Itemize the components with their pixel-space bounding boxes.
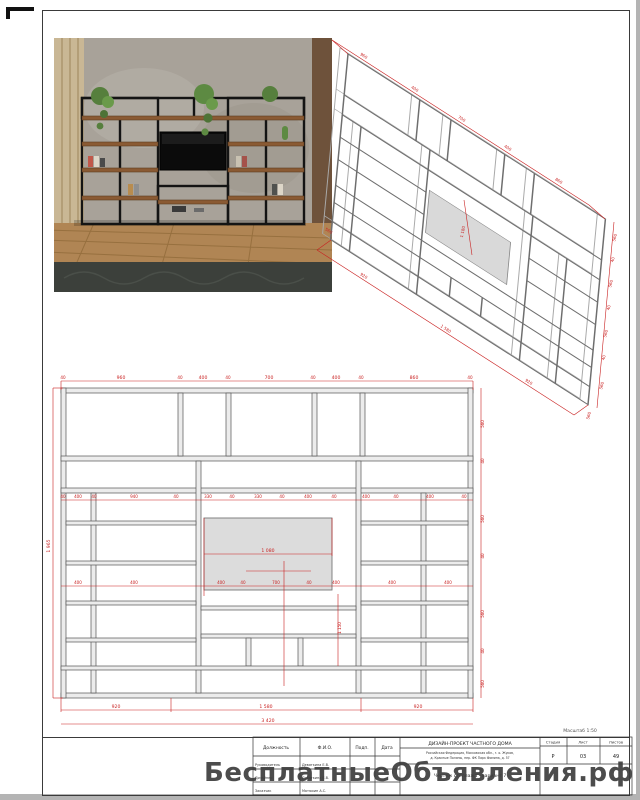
- sheet-label: Лист: [578, 740, 588, 745]
- dim-label: 40: [229, 494, 235, 499]
- col-header: Дата: [381, 745, 393, 751]
- watermark-text: БесплатныеОбъявления.рф: [204, 758, 634, 788]
- drawing-sheet: 960 400 700 400 860 560 40 560 40 560 40…: [0, 0, 636, 794]
- dim-label: 400: [362, 494, 370, 499]
- dim-label: 560: [480, 680, 485, 688]
- corner-mark-horizontal: [6, 7, 34, 11]
- dim-label: 40: [177, 375, 183, 380]
- dim-label: 40: [240, 580, 246, 585]
- dim-label: 330: [254, 494, 262, 499]
- dim-label: 40: [467, 375, 473, 380]
- dim-label: 560: [480, 420, 485, 428]
- dim-label: 330: [204, 494, 212, 499]
- dim-label: 400: [217, 580, 225, 585]
- dim-label: 1 080: [261, 548, 274, 554]
- dim-label: 400: [130, 580, 138, 585]
- dim-label: 40: [60, 494, 66, 499]
- dim-label: 40: [310, 375, 316, 380]
- dim-label: 400: [410, 85, 420, 94]
- dim-label: 560: [611, 233, 618, 242]
- dim-label: 40: [358, 375, 364, 380]
- interior-photo-render: [54, 38, 332, 292]
- dim-label: 40: [605, 304, 611, 311]
- drawing-sheet-page: { "sheet": { "watermark": "БесплатныеОбъ…: [0, 0, 640, 800]
- dim-label: 40: [609, 256, 615, 263]
- dim-label: 560: [480, 515, 485, 523]
- col-header: Должность: [263, 745, 289, 751]
- dim-label: 400: [199, 375, 208, 381]
- dim-label: 40: [225, 375, 231, 380]
- dim-label: 40: [480, 648, 485, 654]
- front-elevation-view: 40 960 40 400 40 700 40 400 40 860 40 40…: [36, 366, 496, 738]
- dim-label: 960: [359, 52, 369, 61]
- dim-label: 920: [414, 704, 423, 710]
- dim-label: 920: [112, 704, 121, 710]
- dim-label: 560: [607, 279, 614, 288]
- dim-label: 1 965: [46, 539, 52, 552]
- dim-label: 40: [600, 354, 606, 361]
- project-address-1: Российская Федерация, Московская обл., г…: [426, 751, 514, 755]
- dim-label: 400: [74, 494, 82, 499]
- dim-label: 920: [359, 272, 369, 281]
- dim-label: 700: [272, 580, 280, 585]
- dim-label: 560: [602, 329, 609, 338]
- dim-label: 400: [332, 580, 340, 585]
- dim-label: 560: [598, 381, 605, 390]
- photo-tv: [160, 132, 226, 170]
- dim-label: 40: [331, 494, 337, 499]
- dim-label: 40: [461, 494, 467, 499]
- dim-label: 400: [304, 494, 312, 499]
- elevation-frame-members: [61, 388, 473, 698]
- dim-label: 400: [426, 494, 434, 499]
- dim-label: 400: [74, 580, 82, 585]
- scale-note: Масштаб 1:50: [563, 728, 597, 734]
- dim-label: 920: [524, 378, 534, 387]
- dim-label: 700: [457, 115, 467, 124]
- dim-label: 40: [393, 494, 399, 499]
- dim-label: 1 150: [337, 622, 342, 634]
- dim-label: 40: [60, 375, 66, 380]
- dim-label: 1 580: [259, 704, 272, 710]
- project-title: ДИЗАЙН-ПРОЕКТ ЧАСТНОГО ДОМА: [428, 740, 512, 747]
- dim-label: 400: [332, 375, 341, 381]
- dim-label: 940: [130, 494, 138, 499]
- role-cell: Заказчик: [255, 789, 271, 793]
- dim-label: 40: [279, 494, 285, 499]
- dim-label: 860: [410, 375, 419, 381]
- sheets-label: Листов: [609, 740, 624, 745]
- dim-label: 960: [117, 375, 126, 381]
- col-header: Ф.И.О.: [318, 745, 333, 751]
- photo-floor: [54, 223, 332, 292]
- dim-label: 40: [306, 580, 312, 585]
- stage-label: Стадия: [546, 740, 561, 745]
- name-cell: Матюхин А.С.: [302, 789, 326, 793]
- dim-label: 560: [480, 610, 485, 618]
- isometric-view: 960 400 700 400 860 560 40 560 40 560 40…: [314, 10, 632, 422]
- dim-label: 40: [173, 494, 179, 499]
- elevation-dimensions: 40 960 40 400 40 700 40 400 40 860 40 40…: [46, 375, 485, 724]
- dim-label: 700: [265, 375, 274, 381]
- col-header: Подп.: [355, 745, 368, 751]
- dim-label: 560: [585, 411, 592, 420]
- corner-mark-vertical: [6, 7, 10, 19]
- dim-label: 40: [480, 553, 485, 559]
- dim-label: 40: [480, 458, 485, 464]
- dim-label: 400: [388, 580, 396, 585]
- dim-label: 400: [444, 580, 452, 585]
- dim-label: 40: [91, 494, 97, 499]
